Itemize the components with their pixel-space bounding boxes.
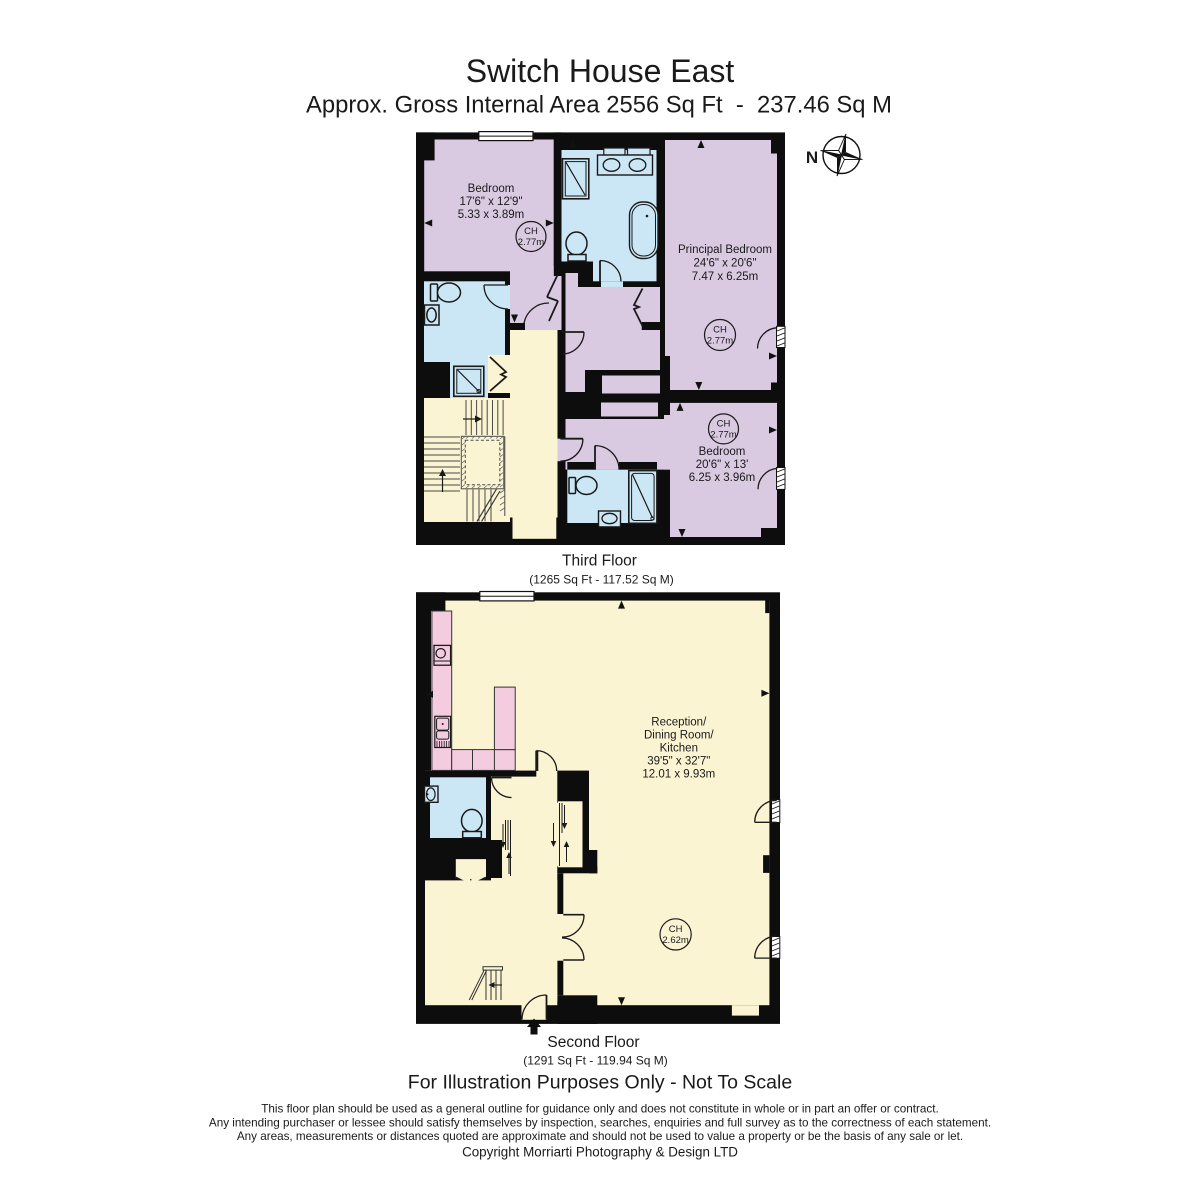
svg-text:Second Floor: Second Floor [547, 1034, 639, 1051]
svg-text:Reception/: Reception/ [651, 717, 707, 729]
svg-text:12.01 x 9.93m: 12.01 x 9.93m [642, 769, 715, 781]
svg-text:Kitchen: Kitchen [660, 743, 698, 755]
svg-text:CH: CH [717, 419, 731, 430]
svg-text:For Illustration Purposes Only: For Illustration Purposes Only - Not To … [408, 1072, 792, 1094]
svg-text:Bedroom: Bedroom [468, 183, 515, 195]
svg-text:39'5" x 32'7": 39'5" x 32'7" [647, 756, 710, 768]
svg-text:2.77m: 2.77m [707, 336, 733, 347]
svg-text:6.25 x 3.96m: 6.25 x 3.96m [689, 472, 755, 484]
svg-text:CH: CH [713, 325, 727, 336]
svg-text:Dining Room/: Dining Room/ [644, 730, 714, 742]
svg-text:CH: CH [669, 924, 683, 935]
svg-text:(1265 Sq Ft - 117.52 Sq M): (1265 Sq Ft - 117.52 Sq M) [529, 573, 674, 587]
svg-text:Copyright Morriarti Photograph: Copyright Morriarti Photography & Design… [462, 1145, 738, 1160]
svg-text:CH: CH [524, 226, 538, 237]
svg-text:Third Floor: Third Floor [562, 553, 637, 570]
svg-text:7.47 x 6.25m: 7.47 x 6.25m [692, 271, 758, 283]
svg-text:Switch House East: Switch House East [466, 53, 735, 89]
svg-text:(1291 Sq Ft - 119.94 Sq M): (1291 Sq Ft - 119.94 Sq M) [523, 1054, 668, 1068]
svg-text:Any intending purchaser or les: Any intending purchaser or lessee should… [209, 1117, 991, 1130]
svg-text:5.33 x 3.89m: 5.33 x 3.89m [458, 209, 524, 221]
svg-text:2.77m: 2.77m [710, 430, 736, 441]
svg-text:24'6" x 20'6": 24'6" x 20'6" [693, 258, 756, 270]
svg-text:Approx. Gross Internal Area 25: Approx. Gross Internal Area 2556 Sq Ft -… [306, 92, 892, 119]
svg-text:Bedroom: Bedroom [699, 446, 746, 458]
svg-text:N: N [806, 148, 818, 167]
svg-text:This floor plan should be used: This floor plan should be used as a gene… [261, 1103, 938, 1116]
svg-text:2.77m: 2.77m [518, 237, 544, 248]
svg-text:17'6" x 12'9": 17'6" x 12'9" [459, 196, 522, 208]
svg-text:Principal Bedroom: Principal Bedroom [678, 244, 772, 256]
svg-text:Any areas, measurements or dis: Any areas, measurements or distances quo… [237, 1130, 963, 1143]
svg-text:2.62m: 2.62m [662, 935, 688, 946]
svg-text:20'6" x 13': 20'6" x 13' [696, 459, 749, 471]
